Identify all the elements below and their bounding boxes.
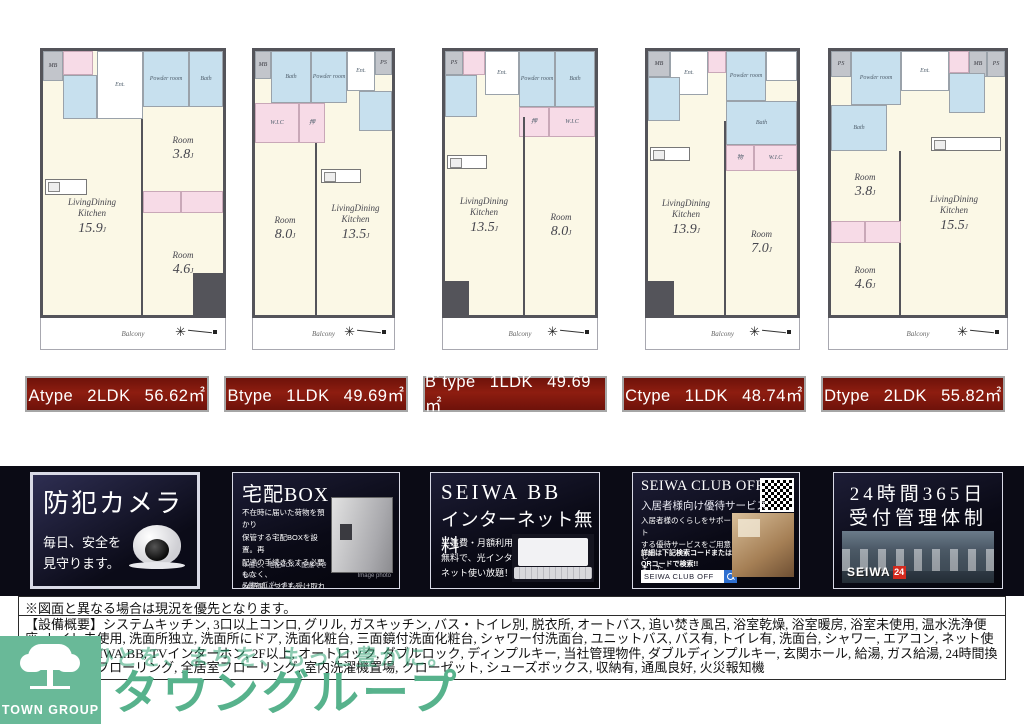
closet [865,221,901,243]
closet [181,191,223,213]
size-unit: J [769,246,772,254]
size-unit: J [697,227,700,235]
storage: 物 [726,145,754,171]
powder-room: Powder room [143,51,189,107]
balcony: Balcony ✳ [252,318,395,350]
bathroom: Bath [831,105,887,151]
closet [708,51,726,73]
delivery-box-image [331,497,393,573]
ldk-size: 13.9 [672,222,697,237]
ldk-size: 13.5 [342,227,367,242]
feature-security-camera: 防犯カメラ 毎日、安全を 見守ります。 [30,472,200,589]
closet [143,191,181,213]
balcony-label: Balcony [907,330,930,338]
bedroom-1: Room 7.0J [726,171,797,315]
powder-room: Powder room [851,51,901,105]
floorplan-btype-walls: MB Bath Powder room Ent. PS W.I.C 押 Room… [252,48,395,318]
management-title-1: 24時間365日 [834,479,1002,506]
size-unit: J [103,226,106,234]
room-size: 3.8 [855,184,873,199]
washer-space [766,51,797,81]
hotel-room-image [732,513,794,577]
floorplan-dtype: PS Powder room Ent. MB PS Bath Room 3.8J… [828,48,1008,350]
type-label-b: Btype 1LDK 49.69㎡ [224,376,408,412]
feature-internet: SEIWA BB インターネット無料 工事費・月額利用料 無料で、光インター ネ… [430,472,600,589]
north-compass-icon: ✳ [957,325,999,338]
ldk-room: LivingDining Kitchen 13.5J [319,131,392,315]
type-label-a: Atype 2LDK 56.62㎡ [25,376,209,412]
town-group-text: TOWN GROUP [0,703,101,717]
bedroom-1: Room 3.8J [143,107,223,191]
pipe-space: PS [831,51,851,77]
type-label-bdash: B´type 1LDK 49.69㎡ [423,376,607,412]
cluboff-title: SEIWA CLUB OFF [641,478,764,495]
cluboff-note: 詳細は下記検索コードまたは QRコードで検索!! [641,549,733,570]
entrance: Ent. [347,51,375,91]
room-size: 8.0 [275,227,293,242]
ldk-size: 15.9 [78,221,103,236]
ldk-label: LivingDining [460,196,508,206]
ldk-label2: Kitchen [940,205,968,215]
ldk-size: 15.5 [940,218,965,233]
bathroom: Bath [726,101,797,145]
floorplan-ctype-walls: MB Ent. Powder room Bath 物 W.I.C LivingD… [645,48,800,318]
size-unit: J [190,152,193,160]
delivery-note: ※但し、宅配BOXへ配達できない 品物もございます。 [242,561,330,589]
room-size: 4.6 [173,262,191,277]
pipe-space: PS [445,51,463,75]
cluboff-search-text: SEIWA CLUB OFF [641,572,724,581]
kitchen-counter-icon [650,147,690,161]
room-label: Room [275,215,296,225]
room-label: Room [855,265,876,275]
type-label-d: Dtype 2LDK 55.82㎡ [821,376,1005,412]
security-subtitle: 毎日、安全を 見守ります。 [43,533,121,575]
toilet-room [445,75,477,117]
meter-box: MB [255,51,271,79]
floorplan-dtype-walls: PS Powder room Ent. MB PS Bath Room 3.8J… [828,48,1008,318]
bedroom-1: Room 8.0J [255,143,317,315]
size-unit: J [366,232,369,240]
cluboff-search-box: SEIWA CLUB OFF [641,570,737,583]
powder-room: Powder room [726,51,766,101]
balcony-label: Balcony [711,330,734,338]
entrance: Ent. [485,51,519,95]
town-group-katakana: タウングループ [112,654,459,723]
room-label: Room [551,212,572,222]
size-unit: J [872,282,875,290]
staff-fleet-image: SEIWA 24 [842,531,994,583]
meter-box: MB [43,51,63,81]
ldk-label2: Kitchen [672,209,700,219]
toilet-room [359,91,392,131]
feature-delivery-box: 宅配BOX 不在時に届いた荷物を預かり 保管する宅配BOXを設置。再 配達の手続… [232,472,400,589]
seiwa24-logo: SEIWA 24 [847,565,906,579]
feature-club-off: SEIWA CLUB OFF 入居者様向け優待サービス 入居者様のくらしをサポー… [632,472,800,589]
wall-block [193,273,223,315]
balcony-label: Balcony [122,330,145,338]
meter-box: MB [648,51,670,77]
flyer-page: MB Ent. Powder room Bath LivingDining Ki… [0,0,1024,724]
floorplan-ctype: MB Ent. Powder room Bath 物 W.I.C LivingD… [645,48,800,350]
north-compass-icon: ✳ [749,325,791,338]
ldk-label: LivingDining [331,203,379,213]
ldk-room: LivingDining Kitchen 15.9J [43,119,143,315]
closet [831,221,865,243]
entrance: Ent. [97,51,143,119]
ldk-label2: Kitchen [341,214,369,224]
pipe-space: PS [375,51,392,75]
ldk-size: 13.5 [470,220,495,235]
floorplan-atype-walls: MB Ent. Powder room Bath LivingDining Ki… [40,48,226,318]
ldk-label: LivingDining [662,198,710,208]
ldk-label2: Kitchen [78,208,106,218]
toilet-room [63,75,97,119]
entrance: Ent. [901,51,949,91]
kitchen-counter-icon [321,169,361,183]
town-group-logo: TOWN GROUP [0,636,101,724]
management-title-2: 受付管理体制 [834,503,1002,530]
size-unit: J [872,189,875,197]
bathroom: Bath [555,51,595,107]
laptop-image [512,534,594,582]
room-size: 7.0 [751,241,769,256]
room-size: 3.8 [173,147,191,162]
toilet-room [949,73,985,113]
delivery-image-caption: Image photo [358,573,391,579]
room-label: Room [173,135,194,145]
bedroom-1: Room 3.8J [831,151,901,221]
size-unit: J [292,232,295,240]
floorplan-bdashtype: PS Ent. Powder room Bath 押 W.I.C LivingD… [442,48,598,350]
size-unit: J [568,229,571,237]
bathroom: Bath [189,51,223,107]
walk-in-closet: W.I.C [255,103,299,143]
balcony: Balcony ✳ [645,318,800,350]
floorplan-atype: MB Ent. Powder room Bath LivingDining Ki… [40,48,226,350]
closet [63,51,93,75]
seiwa-brand-text: SEIWA [847,565,891,579]
size-unit: J [495,225,498,233]
floorplan-bdashtype-walls: PS Ent. Powder room Bath 押 W.I.C LivingD… [442,48,598,318]
bedroom-2: Room 4.6J [831,243,901,315]
kitchen-counter-icon [45,179,87,195]
ldk-label: LivingDining [930,194,978,204]
balcony-label: Balcony [312,330,335,338]
room-size: 4.6 [855,277,873,292]
north-compass-icon: ✳ [175,325,217,338]
toilet-room [648,77,680,121]
wall-block [648,281,674,315]
walk-in-closet: W.I.C [549,107,595,137]
features-band: 防犯カメラ 毎日、安全を 見守ります。 宅配BOX 不在時に届いた荷物を預かり … [0,466,1024,596]
floorplan-btype: MB Bath Powder room Ent. PS W.I.C 押 Room… [252,48,395,350]
room-label: Room [173,250,194,260]
internet-body: 工事費・月額利用料 無料で、光インター ネット使い放題！ [441,536,522,581]
north-compass-icon: ✳ [547,325,589,338]
ldk-label: LivingDining [68,197,116,207]
powder-room: Powder room [519,51,555,107]
closet [463,51,485,75]
bathroom: Bath [271,51,311,103]
feature-management: 24時間365日 受付管理体制 SEIWA 24 [833,472,1003,589]
cluboff-subtitle: 入居者様向け優待サービス [641,498,767,513]
balcony-label: Balcony [509,330,532,338]
bedroom-1: Room 8.0J [527,137,595,315]
pipe-space: PS [987,51,1005,77]
internet-title-1: SEIWA BB [441,480,561,505]
size-unit: J [965,223,968,231]
disclaimer-text: ※図面と異なる場合は現況を優先となります。 [19,597,1005,616]
room-label: Room [855,172,876,182]
balcony: Balcony ✳ [828,318,1008,350]
seiwa-brand-number: 24 [893,566,906,579]
room-size: 8.0 [551,224,569,239]
north-compass-icon: ✳ [344,325,386,338]
kitchen-counter-icon [931,137,1001,151]
wall-block [445,281,469,315]
powder-room: Powder room [311,51,347,103]
closet [949,51,969,73]
security-title: 防犯カメラ [43,483,183,520]
kitchen-counter-icon [447,155,487,169]
walk-in-closet: W.I.C [754,145,797,171]
tree-icon [24,644,76,690]
delivery-title: 宅配BOX [242,478,329,507]
ldk-label2: Kitchen [470,207,498,217]
balcony: Balcony ✳ [442,318,598,350]
balcony: Balcony ✳ [40,318,226,350]
room-label: Room [751,229,772,239]
dome-camera-icon [129,525,185,569]
type-label-c: Ctype 1LDK 48.74㎡ [622,376,806,412]
